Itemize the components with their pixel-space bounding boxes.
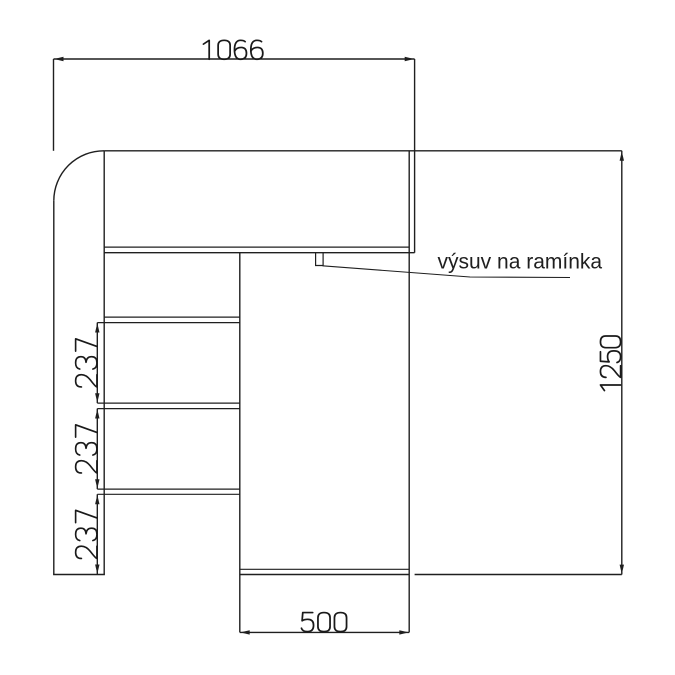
svg-text:výsuv na ramínka: výsuv na ramínka <box>438 251 603 274</box>
